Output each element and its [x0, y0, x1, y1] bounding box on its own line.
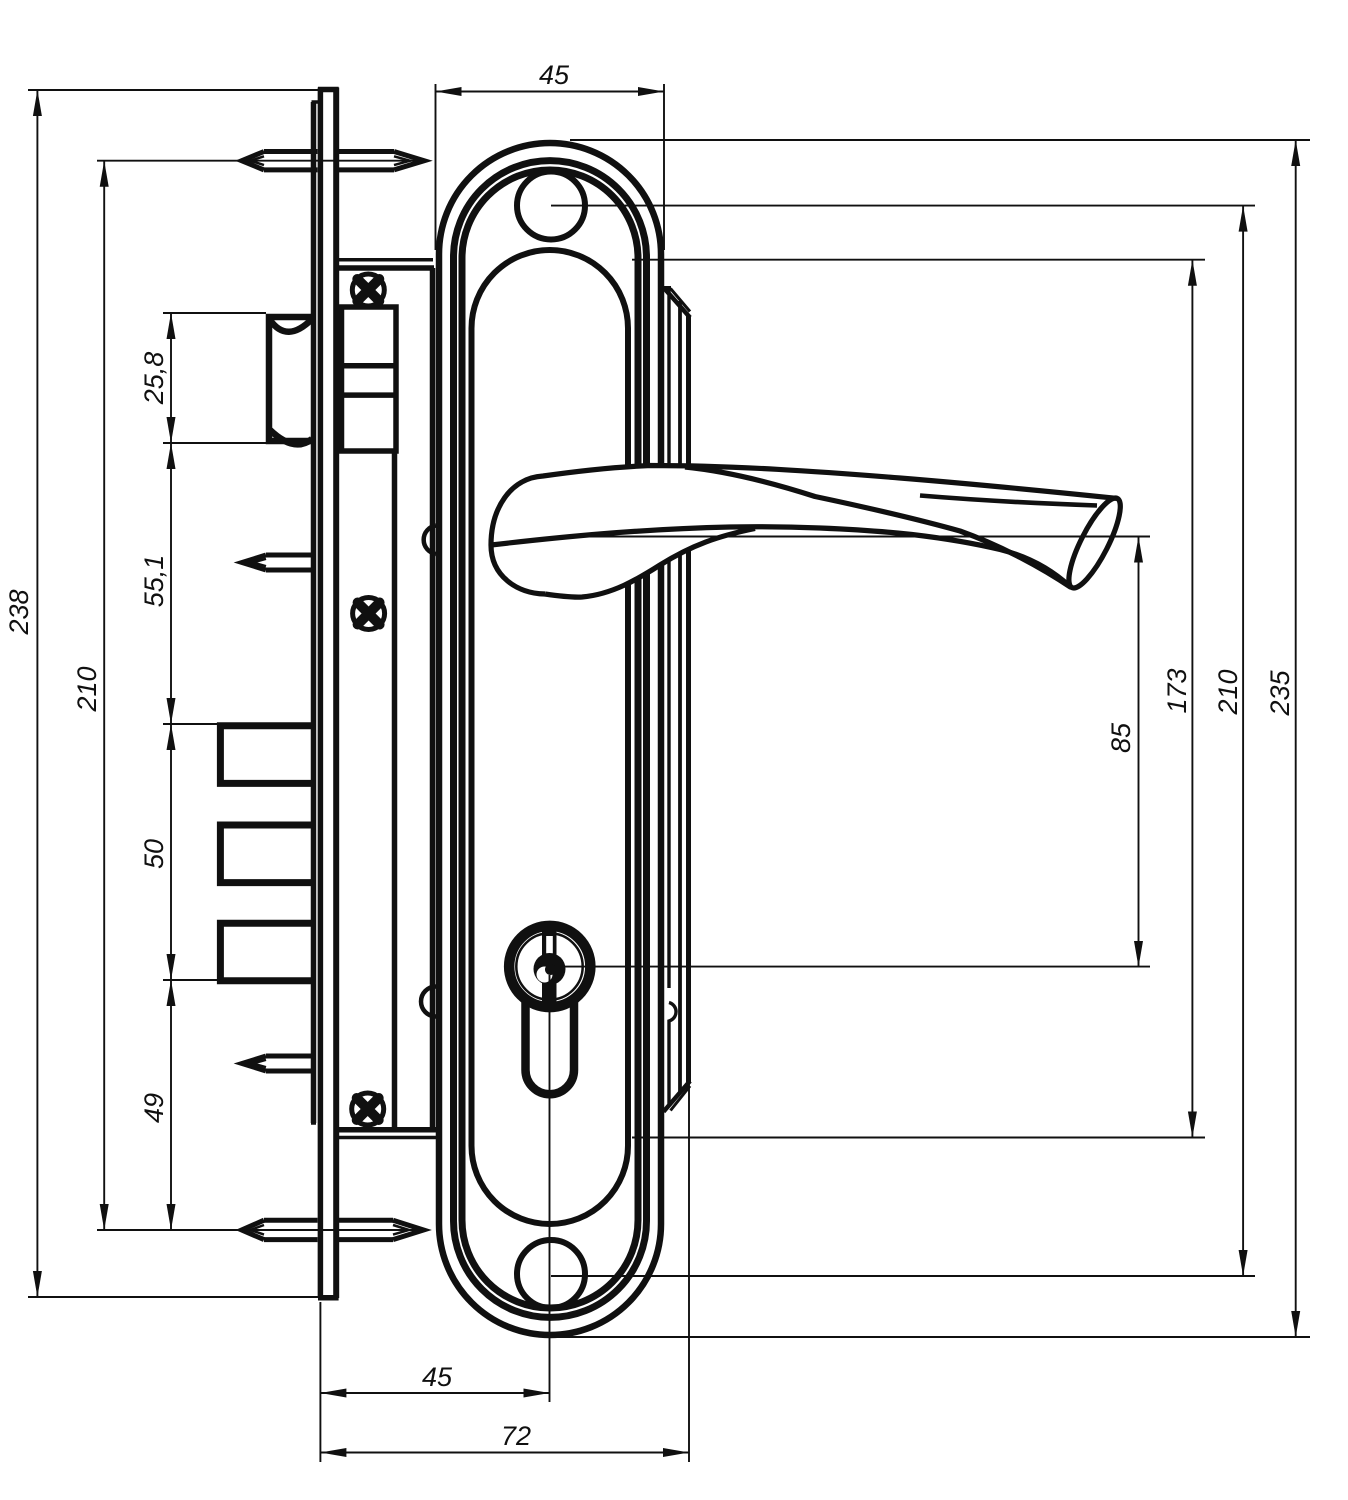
- svg-text:85: 85: [1106, 722, 1136, 753]
- svg-text:25,8: 25,8: [139, 352, 169, 406]
- svg-text:210: 210: [72, 666, 102, 712]
- svg-text:45: 45: [422, 1362, 453, 1392]
- svg-text:210: 210: [1213, 669, 1243, 715]
- svg-text:238: 238: [4, 589, 34, 635]
- svg-text:235: 235: [1265, 669, 1295, 716]
- svg-text:173: 173: [1162, 668, 1192, 713]
- svg-text:72: 72: [501, 1421, 531, 1451]
- svg-text:55,1: 55,1: [139, 555, 169, 608]
- svg-text:49: 49: [139, 1093, 169, 1123]
- svg-text:50: 50: [139, 839, 169, 869]
- svg-text:45: 45: [539, 60, 570, 90]
